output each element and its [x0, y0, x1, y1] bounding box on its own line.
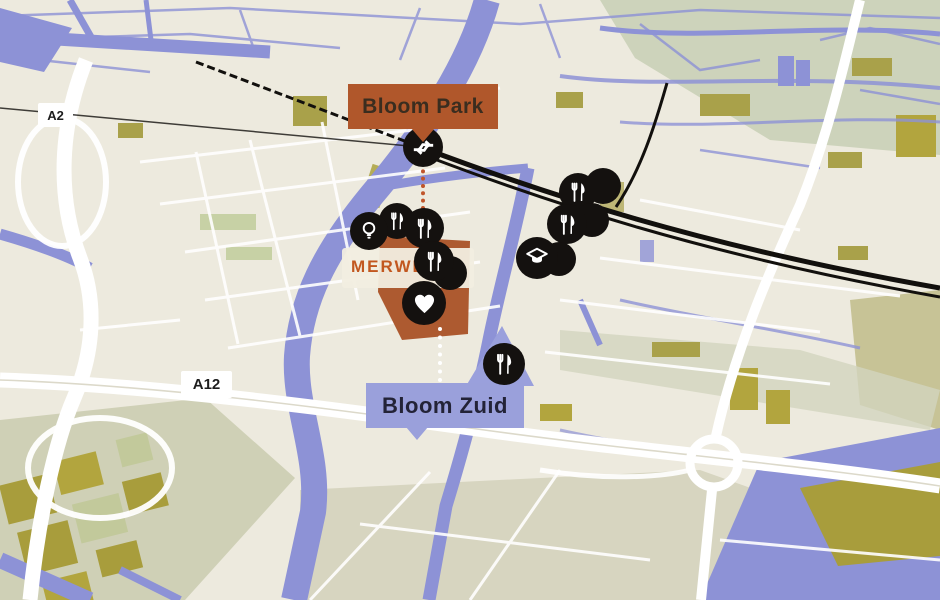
restaurant-icon	[422, 249, 447, 274]
bloom-park-label[interactable]: Bloom Park	[348, 84, 498, 129]
restaurant-marker[interactable]	[483, 343, 525, 385]
a2-road-badge: A2	[38, 103, 73, 127]
restaurant-icon	[491, 351, 517, 377]
restaurant-icon	[412, 216, 437, 241]
bloom-zuid-label-text: Bloom Zuid	[382, 393, 508, 419]
restaurant-marker[interactable]	[547, 204, 587, 244]
lightbulb-icon	[357, 219, 381, 243]
map-viewport[interactable]: Bloom Park Bloom Zuid MERWEDE A2 A12	[0, 0, 940, 600]
heart-marker[interactable]	[402, 281, 446, 325]
restaurant-marker[interactable]	[414, 241, 454, 281]
bloom-zuid-label[interactable]: Bloom Zuid	[366, 383, 524, 428]
bloom-park-label-text: Bloom Park	[362, 95, 484, 119]
poi-marker[interactable]	[585, 168, 621, 204]
restaurant-icon	[555, 212, 580, 237]
a12-road-badge: A12	[181, 371, 232, 398]
heart-icon	[411, 290, 438, 317]
graduation-cap-icon	[524, 245, 550, 271]
lightbulb-marker[interactable]	[350, 212, 388, 250]
bloom-park-link-connector	[421, 162, 425, 210]
bloom-zuid-link-connector	[438, 327, 442, 382]
graduation-cap-marker[interactable]	[516, 237, 558, 279]
